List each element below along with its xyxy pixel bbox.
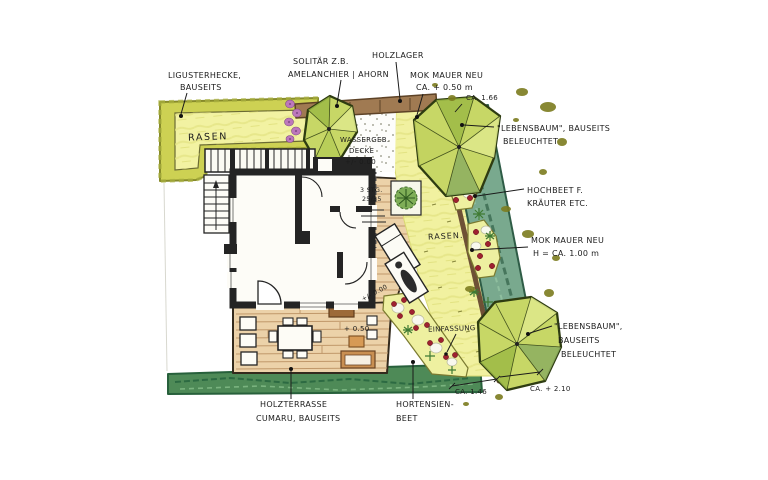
label-wassergeb-3: +/- 0.00 [345, 158, 376, 166]
label-mauer-right: MOK MAUER NEU [531, 236, 604, 245]
label-lebensbaum-bot: "LEBENSBAUM", [554, 322, 623, 331]
scanned-garden-plan: LIGUSTERHECKE, BAUSEITS SOLITÄR Z.B. AME… [0, 0, 768, 480]
label-hochbeet-2: KRÄUTER ETC. [527, 198, 588, 208]
label-lebensbaum-bot-2: BAUSEITS [558, 336, 600, 345]
label-lebensbaum-bot-3: BELEUCHTET [561, 350, 616, 359]
garden-plan-sketch: LIGUSTERHECKE, BAUSEITS SOLITÄR Z.B. AME… [0, 0, 768, 480]
label-ligusterhecke-2: BAUSEITS [180, 83, 222, 92]
label-hortensien: HORTENSIEN- [396, 400, 454, 409]
label-rasen-left: RASEN [188, 131, 228, 143]
wall-pier [224, 244, 237, 254]
chair [241, 352, 257, 365]
shrub-planter [391, 181, 421, 215]
label-stufen: 3 STG. [360, 187, 383, 194]
label-wassergeb: WASSERGEB. [340, 136, 389, 144]
label-stufen-2: 25/35 [362, 196, 382, 203]
tree-trunk [327, 127, 331, 131]
tree-trunk [515, 342, 519, 346]
chair [240, 317, 256, 330]
label-solitaer-2: AMELANCHIER | AHORN [288, 70, 389, 79]
label-hochbeet: HOCHBEET F. [527, 186, 583, 195]
label-wassergeb-2: DECKE [349, 147, 374, 155]
label-level-terrace: + 0.50 [344, 325, 369, 333]
dining-table [278, 326, 312, 350]
coffee-table [349, 336, 364, 347]
label-mauer-top: MOK MAUER NEU [410, 71, 483, 80]
label-solitaer: SOLITÄR Z.B. [293, 56, 349, 66]
label-mauer-right-2: H = CA. 1.00 m [533, 249, 599, 258]
house-floorplan [204, 149, 377, 310]
label-ligusterhecke: LIGUSTERHECKE, [168, 71, 241, 80]
label-rasen-center: RASEN. [428, 231, 464, 242]
label-ca-146: CA. 1.46 [455, 388, 487, 396]
stairs [204, 175, 229, 233]
label-lebensbaum-top-2: BELEUCHTET [503, 137, 558, 146]
label-hortensien-2: BEET [396, 414, 418, 423]
label-ca-166: CA. 1.66 [466, 94, 498, 102]
label-holzterrasse-2: CUMARU, BAUSEITS [256, 414, 340, 423]
label-holzterrasse: HOLZTERRASSE [260, 400, 327, 409]
tree-trunk [457, 145, 461, 149]
label-mauer-top-2: CA. + 0.50 m [416, 83, 473, 92]
chair [240, 334, 256, 347]
label-lebensbaum-top: "LEBENSBAUM", BAUSEITS [497, 124, 610, 133]
label-holzlager: HOLZLAGER [372, 51, 424, 60]
label-einfassung: EINFASSUNG [428, 324, 476, 334]
label-ca-210: CA. + 2.10 [530, 385, 571, 393]
